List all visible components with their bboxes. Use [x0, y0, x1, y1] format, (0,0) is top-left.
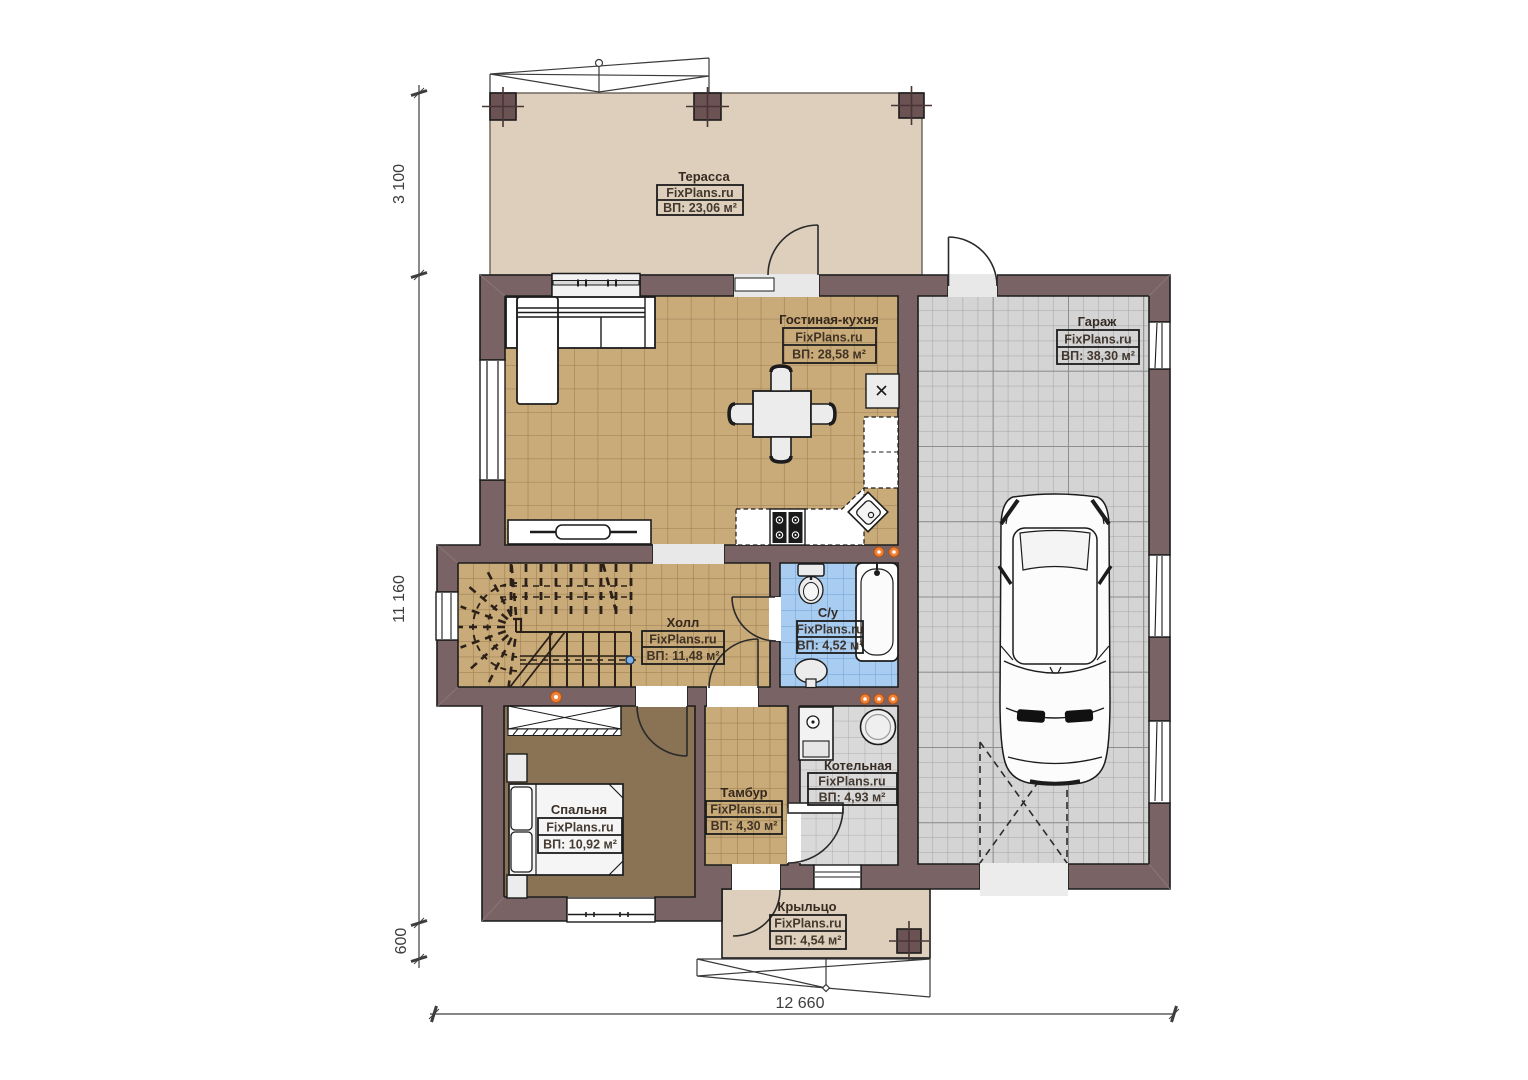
svg-text:3 100: 3 100: [391, 164, 408, 204]
svg-text:Холл: Холл: [667, 615, 700, 630]
svg-text:FixPlans.ru: FixPlans.ru: [710, 803, 777, 817]
svg-text:Спальня: Спальня: [551, 802, 607, 817]
svg-text:Тамбур: Тамбур: [720, 785, 767, 800]
svg-text:ВП: 23,06 м²: ВП: 23,06 м²: [663, 201, 737, 215]
svg-text:ВП: 4,52 м²: ВП: 4,52 м²: [797, 639, 864, 653]
svg-text:Гостиная-кухня: Гостиная-кухня: [779, 312, 879, 327]
svg-text:ВП: 4,54 м²: ВП: 4,54 м²: [775, 934, 842, 948]
svg-text:FixPlans.ru: FixPlans.ru: [1064, 333, 1131, 347]
svg-text:Крыльцо: Крыльцо: [777, 899, 836, 914]
svg-text:С/у: С/у: [818, 605, 839, 620]
svg-text:FixPlans.ru: FixPlans.ru: [666, 186, 733, 200]
svg-text:ВП: 4,30 м²: ВП: 4,30 м²: [711, 819, 778, 833]
svg-text:FixPlans.ru: FixPlans.ru: [546, 821, 613, 835]
svg-text:12 660: 12 660: [776, 995, 825, 1012]
svg-text:ВП: 11,48 м²: ВП: 11,48 м²: [646, 649, 719, 663]
svg-text:600: 600: [393, 928, 410, 955]
svg-text:ВП: 28,58 м²: ВП: 28,58 м²: [792, 348, 866, 362]
svg-text:Гараж: Гараж: [1078, 314, 1118, 329]
svg-text:FixPlans.ru: FixPlans.ru: [774, 917, 841, 931]
svg-text:ВП: 10,92 м²: ВП: 10,92 м²: [543, 838, 617, 852]
svg-text:ВП: 38,30 м²: ВП: 38,30 м²: [1061, 349, 1135, 363]
svg-text:Терасса: Терасса: [678, 169, 730, 184]
svg-text:11 160: 11 160: [391, 575, 408, 623]
svg-text:FixPlans.ru: FixPlans.ru: [796, 623, 863, 637]
svg-text:FixPlans.ru: FixPlans.ru: [649, 633, 716, 647]
svg-text:FixPlans.ru: FixPlans.ru: [818, 775, 885, 789]
svg-text:ВП: 4,93 м²: ВП: 4,93 м²: [819, 791, 886, 805]
svg-text:FixPlans.ru: FixPlans.ru: [795, 331, 862, 345]
svg-text:Котельная: Котельная: [824, 758, 892, 773]
